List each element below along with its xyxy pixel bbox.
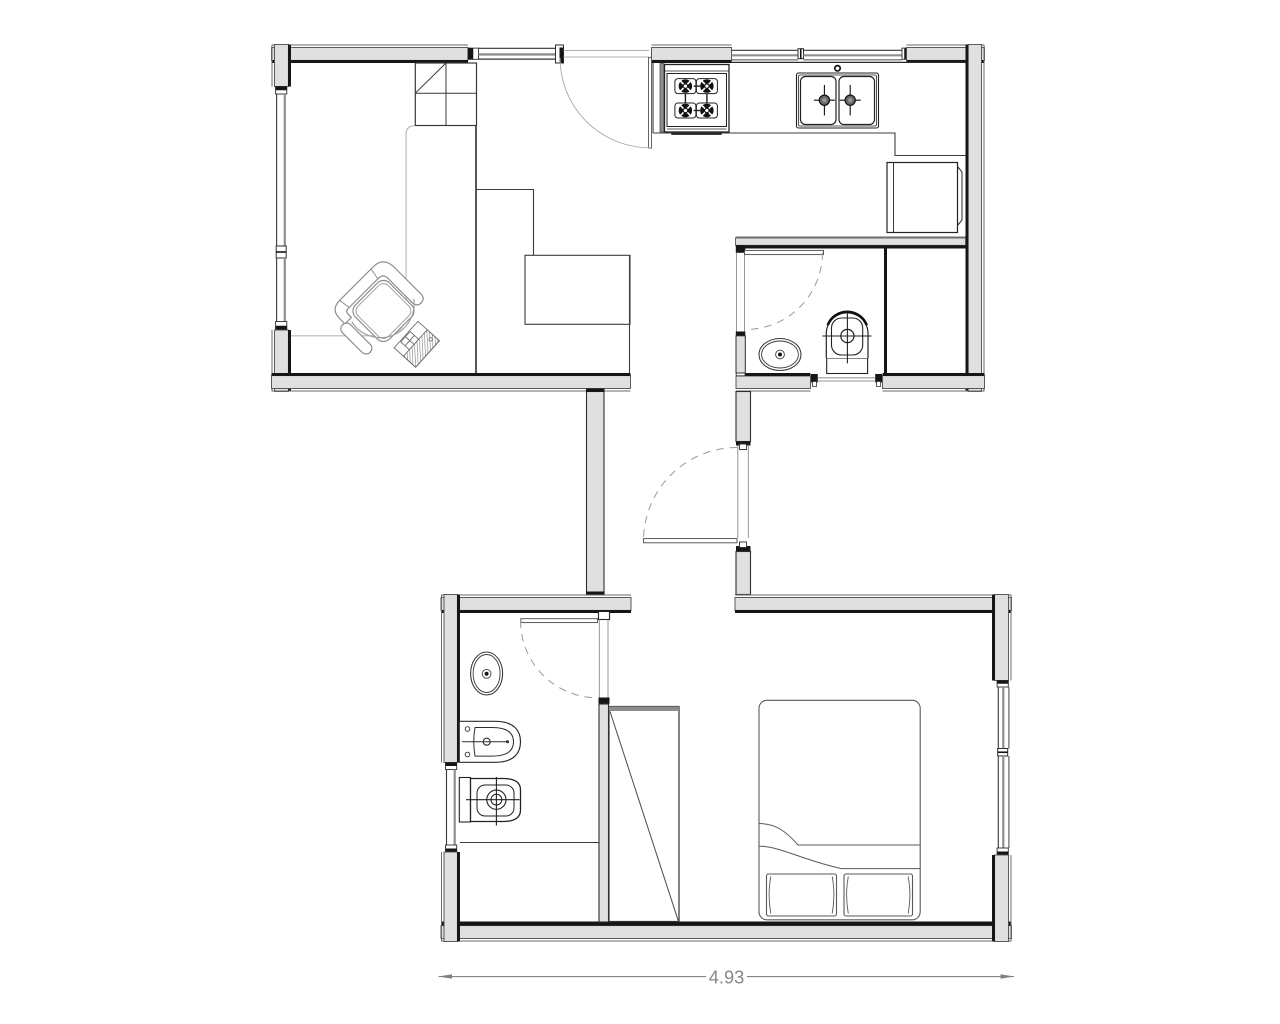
- svg-text:4.93: 4.93: [709, 968, 744, 988]
